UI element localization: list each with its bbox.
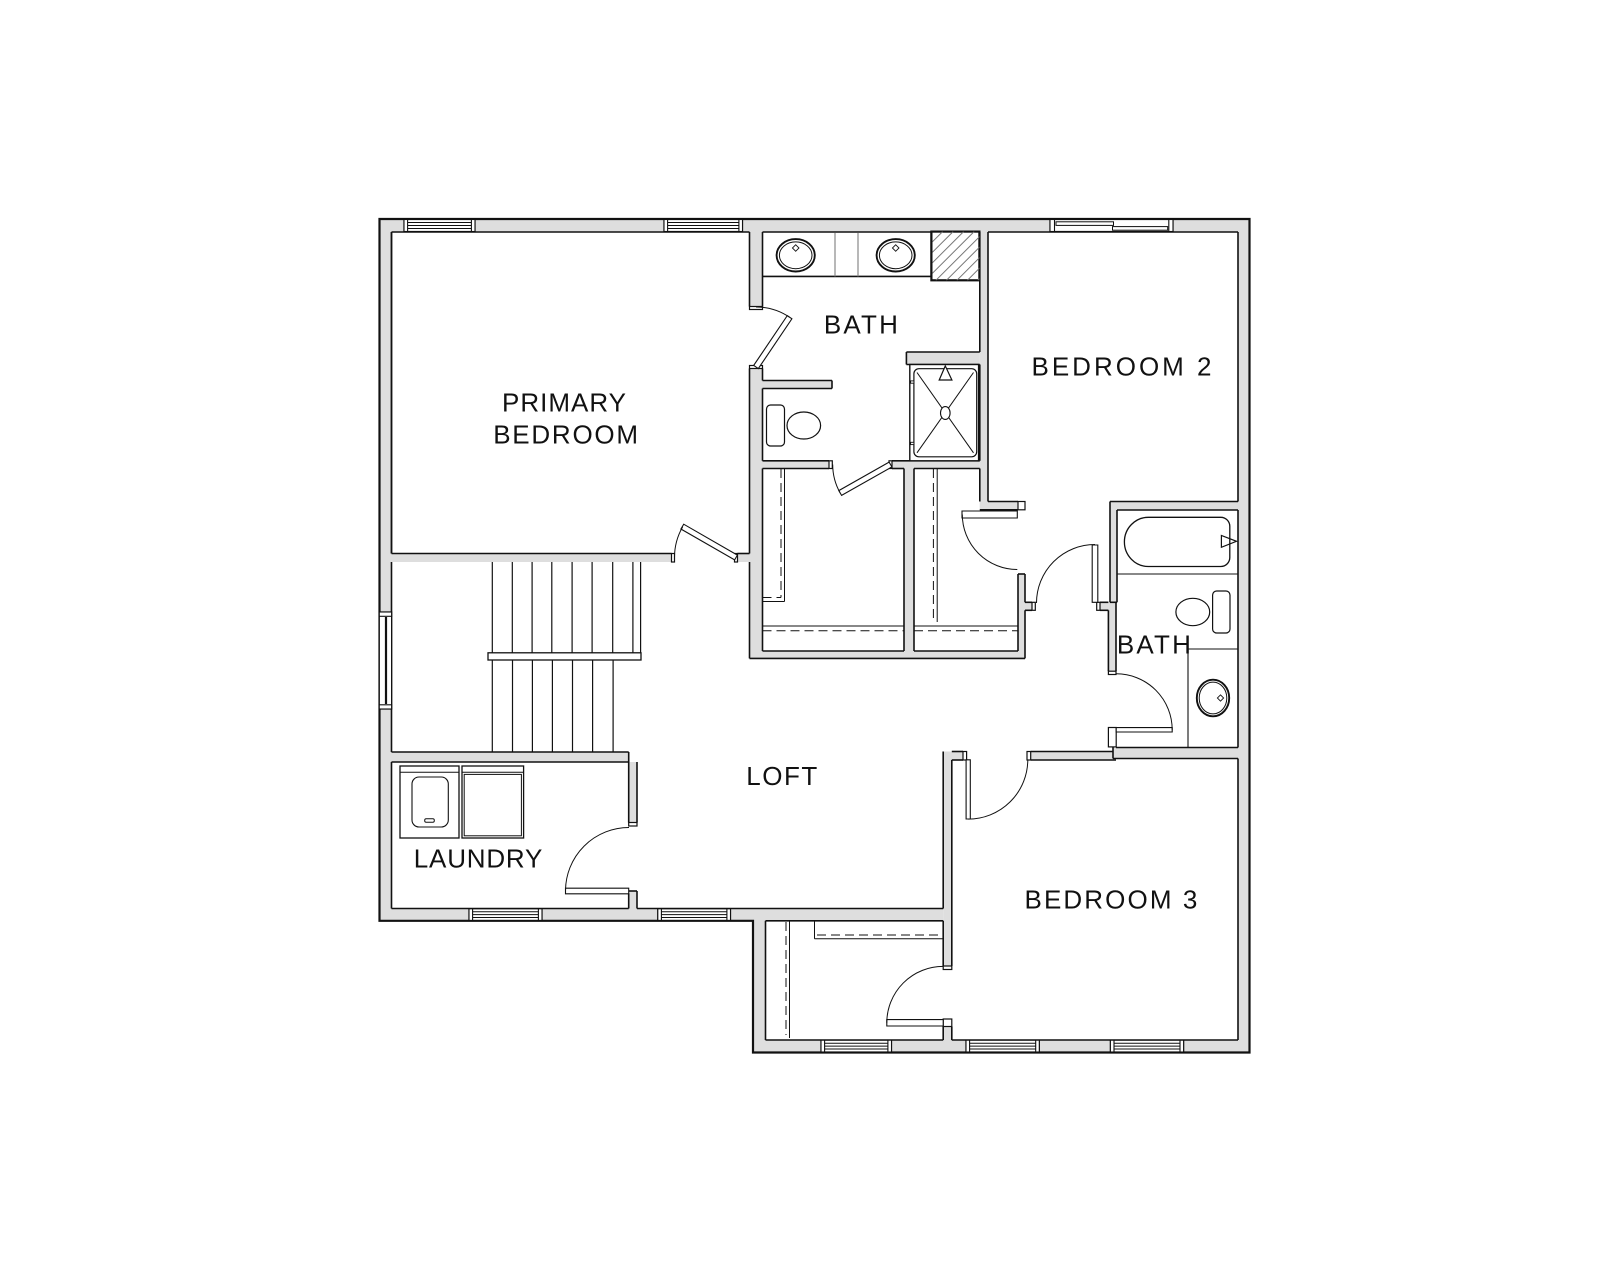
svg-text:BATH: BATH [824, 310, 900, 340]
svg-text:LOFT: LOFT [746, 761, 818, 791]
svg-text:PRIMARY: PRIMARY [502, 388, 627, 418]
svg-text:BATH: BATH [1117, 630, 1193, 660]
svg-text:BEDROOM 3: BEDROOM 3 [1025, 885, 1200, 915]
svg-text:LAUNDRY: LAUNDRY [414, 844, 543, 874]
svg-text:BEDROOM: BEDROOM [493, 420, 640, 450]
svg-text:BEDROOM 2: BEDROOM 2 [1031, 352, 1214, 382]
